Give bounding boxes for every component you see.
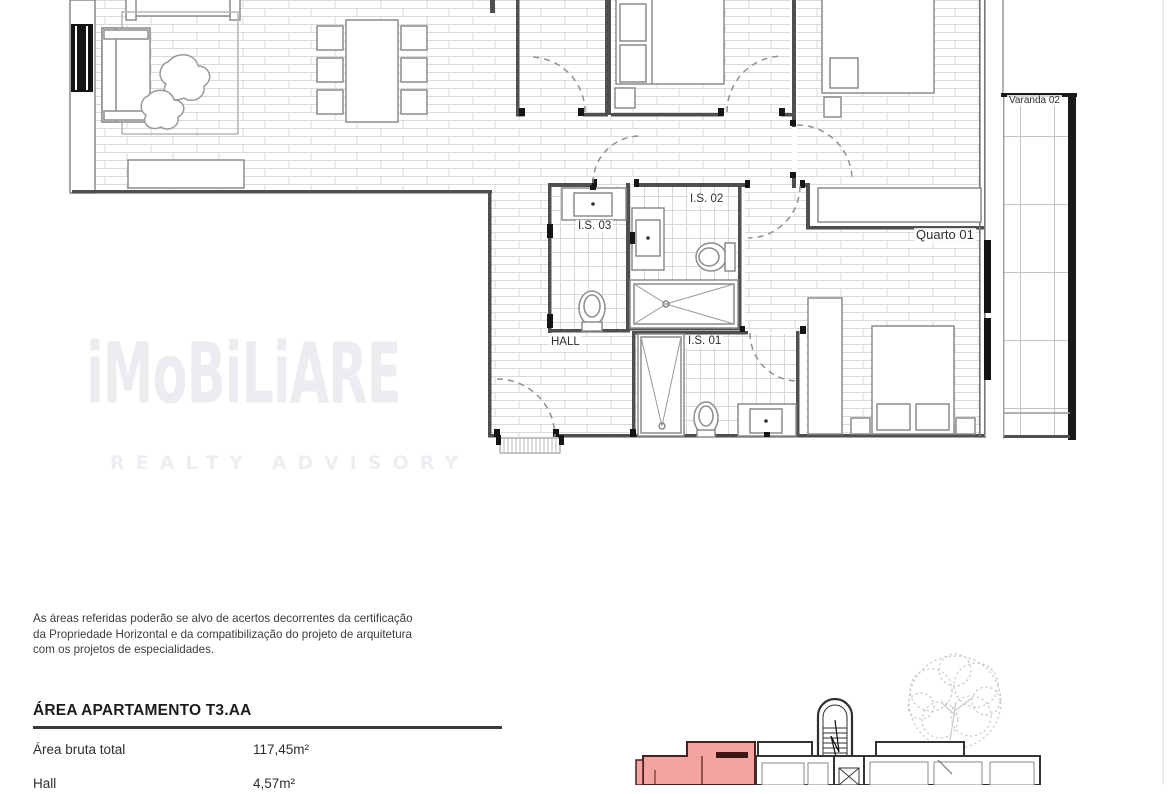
nightstand xyxy=(956,418,975,434)
room-label-hall: HALL xyxy=(549,336,582,349)
chair xyxy=(401,58,427,82)
mini-site-plan xyxy=(636,654,1040,785)
floorplan-sheet: { "floorplan": { "labels": { "is03": "I.… xyxy=(0,0,1170,785)
chair xyxy=(317,90,343,114)
disclaimer-line-2: da Propriedade Horizontal e da compatibi… xyxy=(33,627,413,643)
disclaimer-line-1: As áreas referidas poderão se alvo de ac… xyxy=(33,611,413,627)
wardrobe-strip xyxy=(818,188,981,222)
room-label-is03: I.S. 03 xyxy=(576,220,613,233)
chair xyxy=(317,26,343,50)
nightstand xyxy=(851,418,870,434)
tree-icon xyxy=(908,654,1001,748)
chair xyxy=(317,58,343,82)
stair-tower xyxy=(818,699,852,758)
highlighted-unit xyxy=(636,742,755,785)
room-label-is01: I.S. 01 xyxy=(686,335,723,348)
area-row-value: 4,57m² xyxy=(253,776,295,791)
disclaimer-text: As áreas referidas poderão se alvo de ac… xyxy=(33,611,413,658)
room-label-varanda02: Varanda 02 xyxy=(1007,95,1062,106)
chair xyxy=(401,90,427,114)
area-table-row: Área bruta total 117,45m² xyxy=(33,742,503,760)
area-row-label: Hall xyxy=(33,776,56,791)
area-row-value: 117,45m² xyxy=(253,742,309,757)
room-label-is02: I.S. 02 xyxy=(688,193,725,206)
nightstand xyxy=(615,88,635,108)
dining-table xyxy=(346,20,398,122)
area-row-label: Área bruta total xyxy=(33,742,125,757)
area-table-row: Hall 4,57m² xyxy=(33,776,503,794)
neighbour-units xyxy=(756,742,1040,785)
floor-plan-drawing xyxy=(0,0,1170,785)
wardrobe xyxy=(808,298,842,434)
chair xyxy=(401,26,427,50)
nightstand xyxy=(824,97,841,117)
tv-console xyxy=(128,160,244,188)
room-label-quarto01: Quarto 01 xyxy=(914,228,976,242)
entrance-doormat xyxy=(496,435,564,453)
area-table-title: ÁREA APARTAMENTO T3.AA xyxy=(33,702,502,729)
sofa-top xyxy=(133,0,233,16)
disclaimer-line-3: com os projetos de especialidades. xyxy=(33,642,413,658)
